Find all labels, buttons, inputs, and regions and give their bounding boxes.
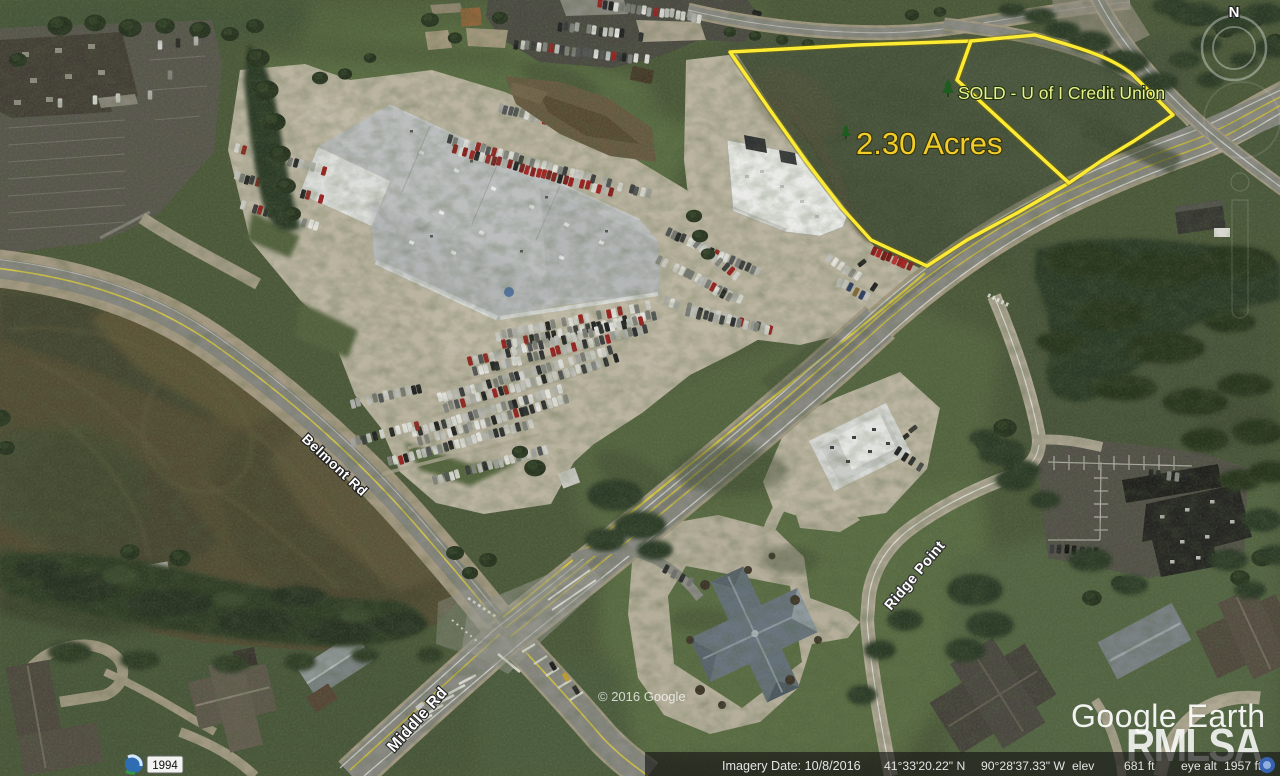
svg-text:SOLD - U of I Credit Union: SOLD - U of I Credit Union — [958, 83, 1165, 103]
svg-text:681 ft: 681 ft — [1124, 759, 1155, 773]
svg-text:41°33'20.22" N: 41°33'20.22" N — [884, 759, 965, 773]
svg-text:Imagery Date: 10/8/2016: Imagery Date: 10/8/2016 — [722, 759, 861, 773]
svg-text:elev: elev — [1072, 759, 1095, 773]
svg-text:N: N — [1229, 4, 1240, 21]
svg-text:eye alt: eye alt — [1181, 759, 1218, 773]
svg-text:2.30 Acres: 2.30 Acres — [856, 126, 1002, 161]
svg-text:© 2016 Google: © 2016 Google — [598, 689, 686, 704]
svg-text:1994: 1994 — [152, 760, 178, 772]
svg-text:1957 ft: 1957 ft — [1224, 759, 1262, 773]
svg-text:90°28'37.33" W: 90°28'37.33" W — [981, 759, 1066, 773]
